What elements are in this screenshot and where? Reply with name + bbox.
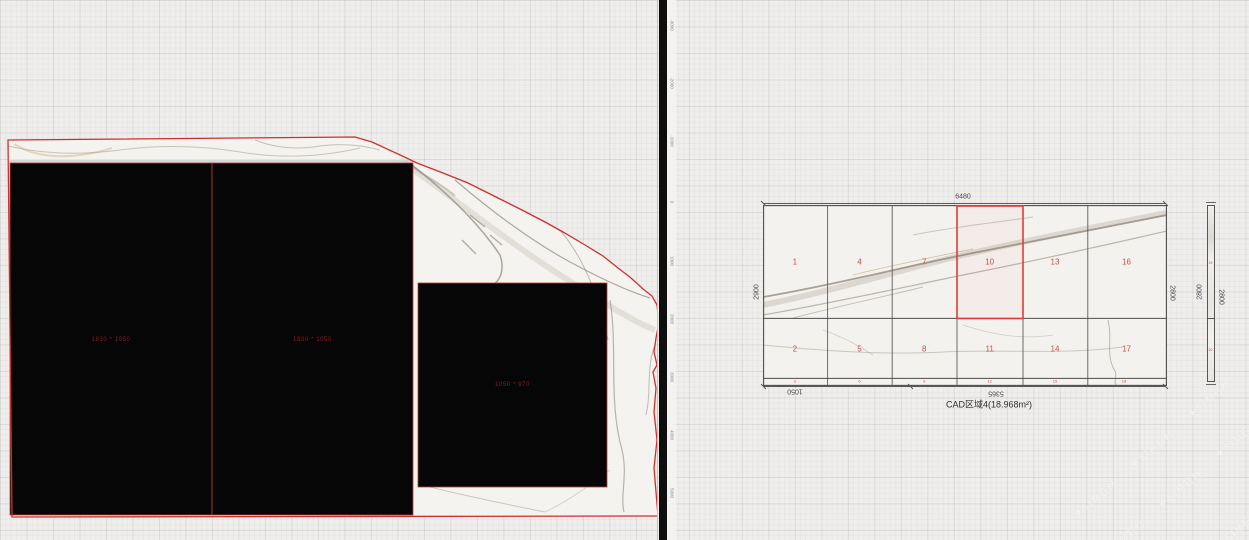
cad-area-title: CAD区域4(18.968m²) xyxy=(946,398,1032,411)
cell-number[interactable]: 17 xyxy=(1122,344,1131,353)
piece-1-dimension-label: 1830 * 1050 xyxy=(10,336,212,344)
side-piece-number-bottom[interactable]: 20 xyxy=(1209,348,1213,352)
cell-number[interactable]: 10 xyxy=(985,257,994,266)
cell-number[interactable]: 14 xyxy=(1051,344,1060,353)
side-dim-label-left: 2800 xyxy=(1197,284,1204,300)
side-strip-divider xyxy=(1208,318,1214,319)
strip-cell-number[interactable]: 18 xyxy=(1122,378,1126,383)
cell-number[interactable]: 1 xyxy=(793,257,797,266)
left-panel-slab-view: 1830 * 1050 1830 * 1050 1050 * 970 xyxy=(0,0,658,540)
cell-number[interactable]: 7 xyxy=(922,257,926,266)
strip-cell-number[interactable]: 3 xyxy=(794,378,796,383)
side-piece-number-top[interactable]: 19 xyxy=(1209,261,1213,265)
piece-3-dimension-label: 1050 * 970 xyxy=(418,381,607,389)
cell-number[interactable]: 4 xyxy=(857,257,861,266)
cell-number[interactable]: 11 xyxy=(986,344,994,353)
ruler-tick: 3000 xyxy=(669,372,674,382)
slab-canvas xyxy=(0,0,658,540)
cad-tile-board[interactable] xyxy=(763,205,1167,386)
dim-label-left: 2900 xyxy=(753,284,760,300)
strip-cell-number[interactable]: 12 xyxy=(987,378,991,383)
dim-label-bottom-mid: 5365 xyxy=(988,389,1004,396)
dim-label-right: 2800 xyxy=(1168,285,1175,301)
panel-divider-bar[interactable] xyxy=(659,0,667,540)
side-section-strip[interactable] xyxy=(1207,205,1215,382)
ruler-tick: -3000 xyxy=(669,19,674,31)
cell-number[interactable]: 8 xyxy=(922,344,926,353)
strip-cell-number[interactable]: 6 xyxy=(858,378,860,383)
dim-line-top xyxy=(763,203,1166,204)
dim-label-bottom-left: 1050 xyxy=(787,388,803,395)
dim-label-top: 6480 xyxy=(955,193,971,200)
panel-edge-line xyxy=(657,0,658,540)
ruler-tick: 4000 xyxy=(669,430,674,440)
right-panel-cad-view: 1 4 7 10 13 16 2 5 8 11 14 17 3 6 9 12 1… xyxy=(680,0,1249,540)
ruler-tick: -2000 xyxy=(669,77,674,89)
ruler-tick: 5000 xyxy=(669,488,674,498)
side-strip-top-tick xyxy=(1206,202,1216,203)
cell-number[interactable]: 2 xyxy=(793,344,797,353)
cell-number[interactable]: 16 xyxy=(1122,257,1131,266)
strip-cell-number[interactable]: 9 xyxy=(923,378,925,383)
side-dim-label-right: 2800 xyxy=(1218,289,1225,305)
cell-number[interactable]: 13 xyxy=(1051,257,1060,266)
ruler-tick: 0 xyxy=(669,201,674,204)
dim-line-bottom xyxy=(763,386,1166,387)
app-screen: 1830 * 1050 1830 * 1050 1050 * 970 -3000… xyxy=(0,0,1249,540)
piece-2-dimension-label: 1830 * 1050 xyxy=(212,336,413,344)
cell-number[interactable]: 5 xyxy=(857,344,861,353)
vertical-ruler: -3000 -2000 -1000 0 1000 2000 3000 4000 … xyxy=(667,0,676,540)
ruler-tick: -1000 xyxy=(669,135,674,147)
ruler-tick: 2000 xyxy=(669,314,674,324)
strip-cell-number[interactable]: 15 xyxy=(1053,378,1057,383)
ruler-tick: 1000 xyxy=(669,256,674,266)
